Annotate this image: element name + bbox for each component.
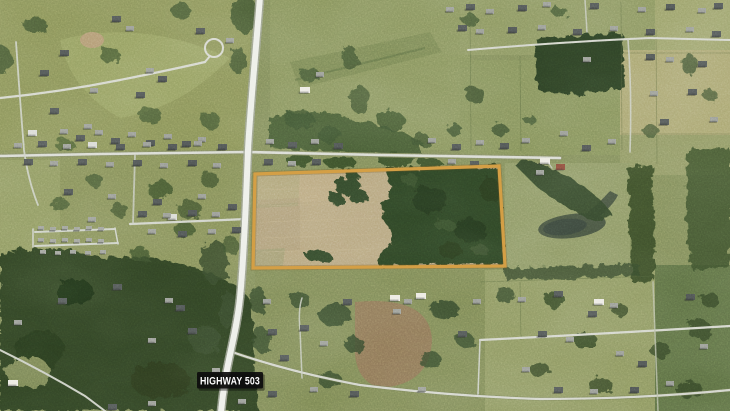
photo-grain [0, 0, 730, 411]
map-viewport[interactable]: HIGHWAY 503 [0, 0, 730, 411]
highway-label: HIGHWAY 503 [197, 372, 265, 391]
aerial-satellite-map: HIGHWAY 503 [0, 0, 730, 411]
highway-label-text: HIGHWAY 503 [200, 376, 260, 388]
